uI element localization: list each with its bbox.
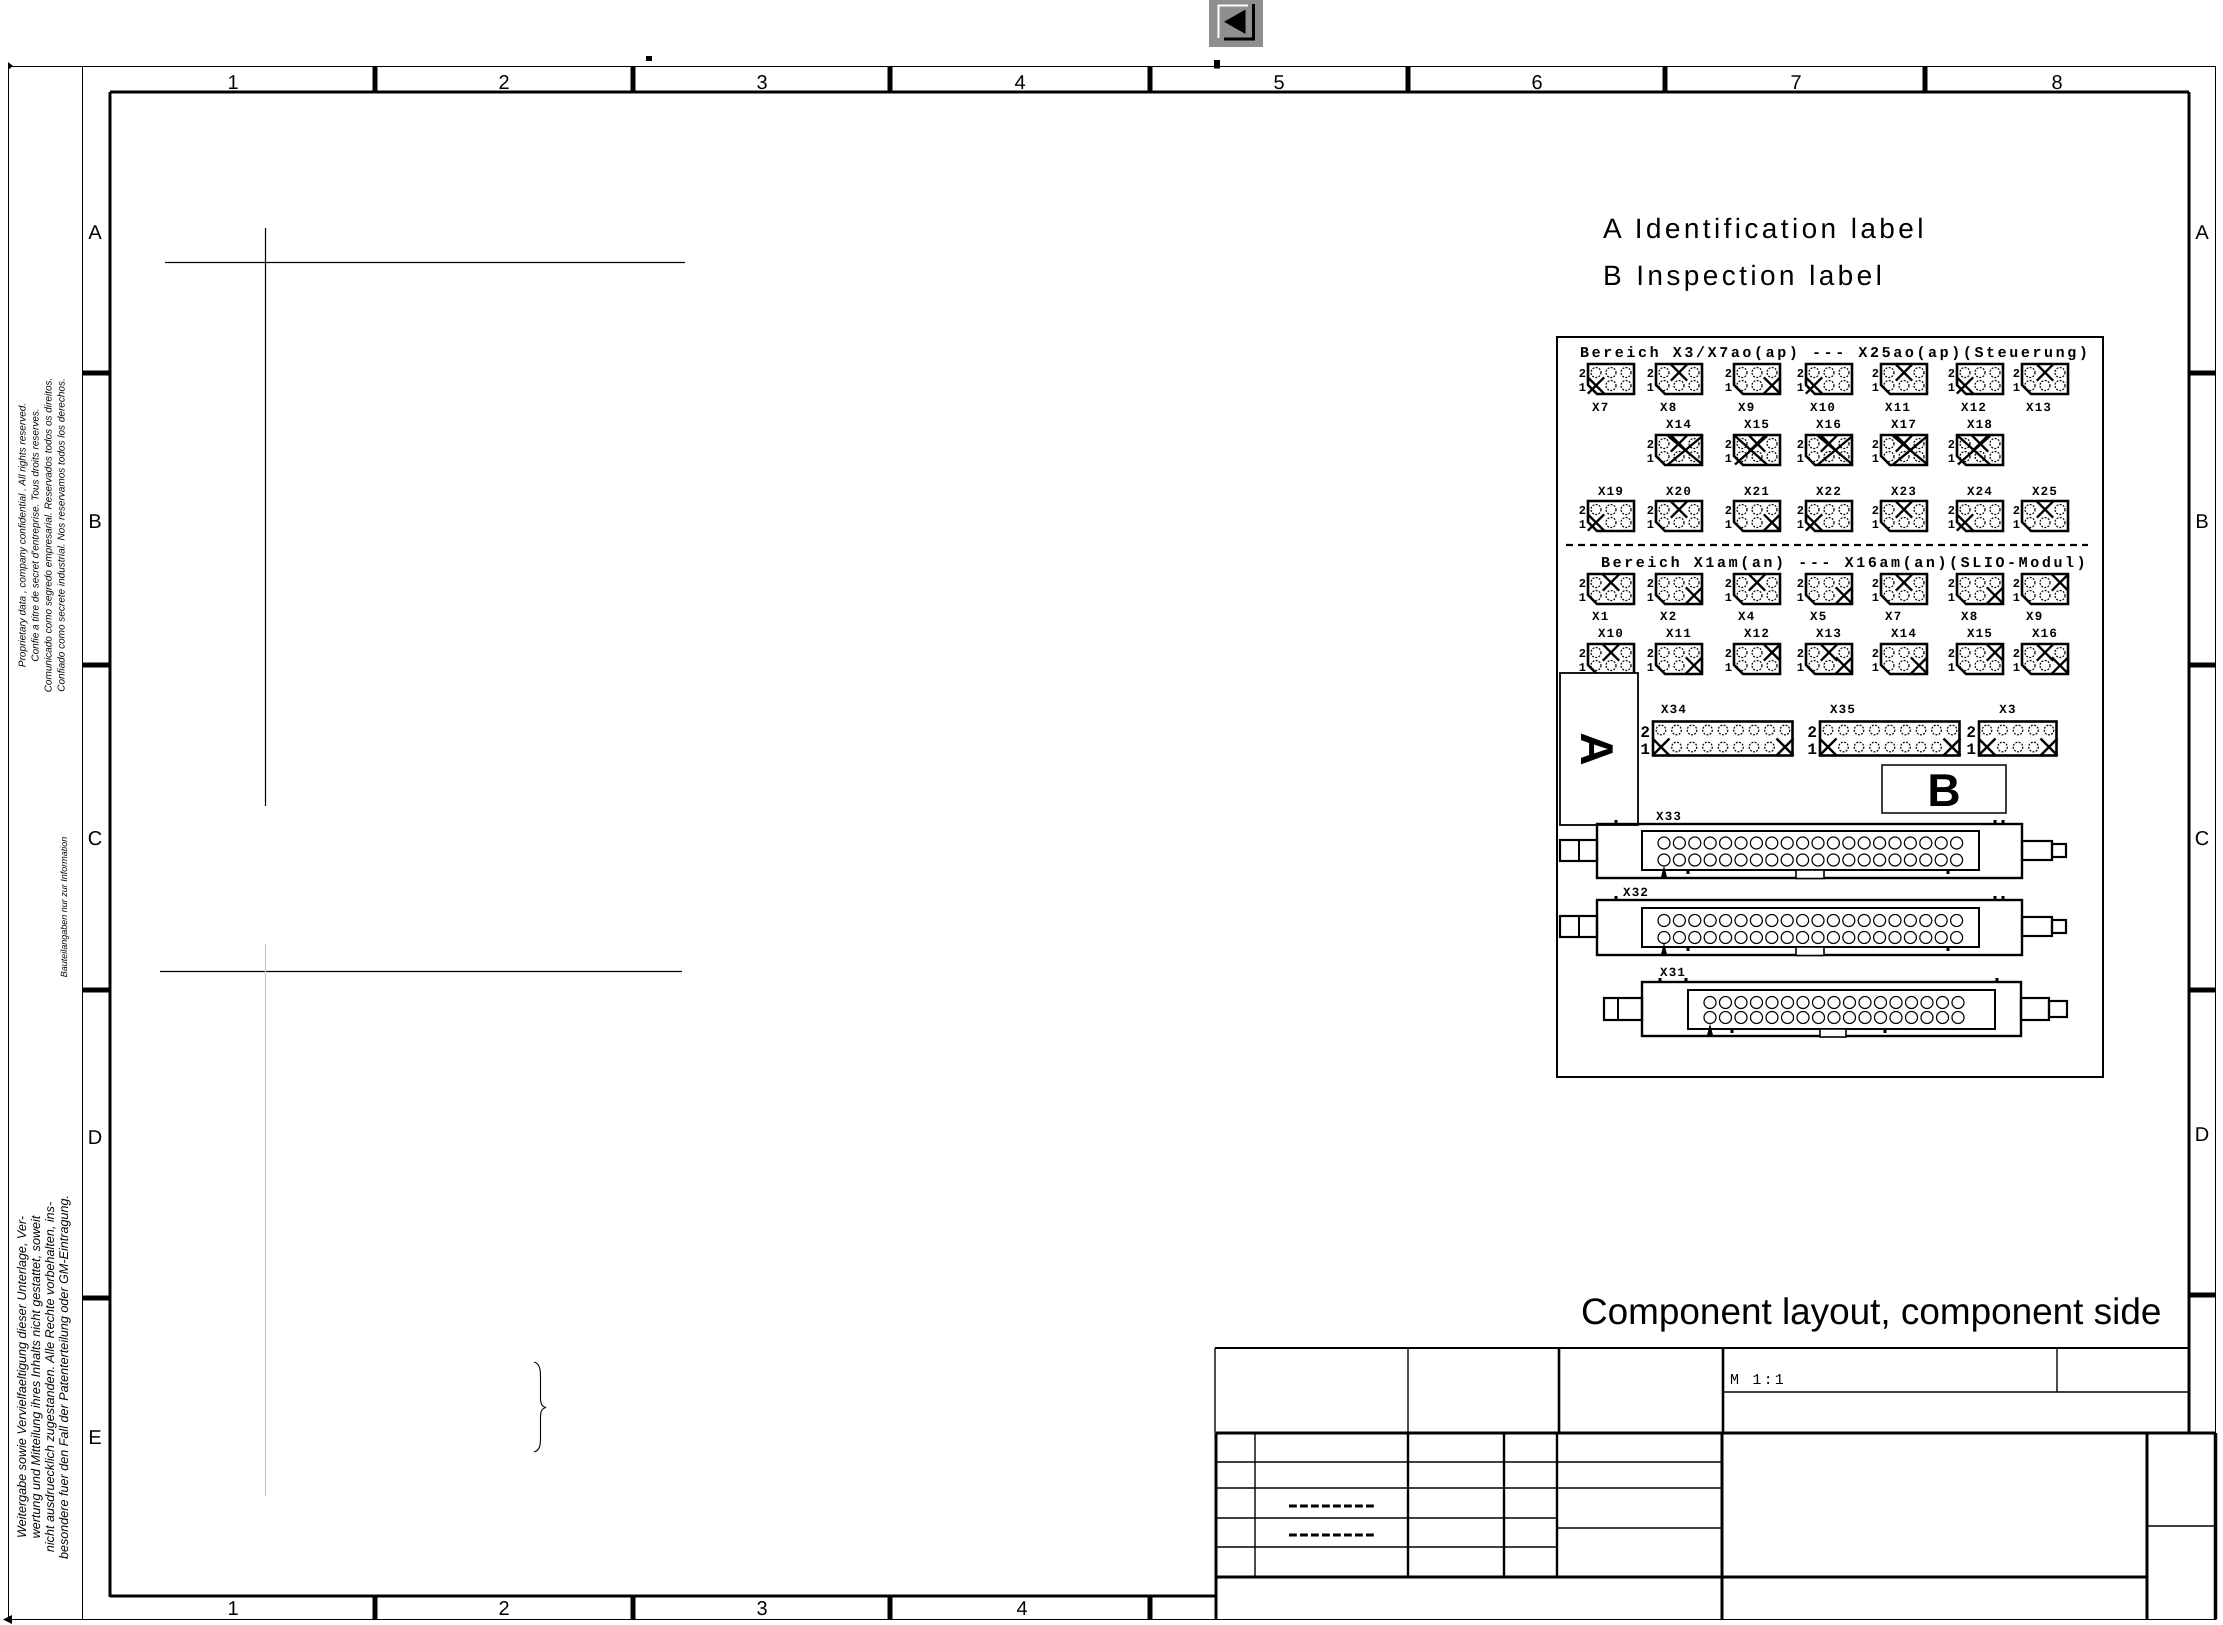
- svg-text:2: 2: [2013, 367, 2020, 381]
- svg-text:2: 2: [1579, 577, 1586, 591]
- svg-text:X3: X3: [1999, 703, 2016, 717]
- svg-text:2: 2: [1725, 577, 1732, 591]
- svg-text:2: 2: [1647, 647, 1654, 661]
- svg-text:2: 2: [1579, 504, 1586, 518]
- svg-text:Bereich X3/X7ao(ap) --- X25a: Bereich X3/X7ao(ap) --- X25ao(ap)(Steuer…: [1580, 345, 2090, 362]
- svg-text:X19: X19: [1598, 485, 1624, 499]
- svg-text:X18: X18: [1967, 418, 1993, 432]
- svg-text:X34: X34: [1661, 703, 1687, 717]
- svg-text:X9: X9: [1738, 401, 1755, 415]
- svg-text:X12: X12: [1961, 401, 1987, 415]
- svg-text:1: 1: [1948, 591, 1955, 605]
- svg-text:C: C: [88, 828, 102, 850]
- svg-text:1: 1: [1647, 381, 1654, 395]
- svg-text:1: 1: [1647, 591, 1654, 605]
- svg-text:X11: X11: [1885, 401, 1911, 415]
- svg-text:A: A: [2195, 222, 2209, 244]
- svg-text:1: 1: [2013, 591, 2020, 605]
- svg-text:B: B: [88, 511, 101, 533]
- svg-text:X13: X13: [2026, 401, 2052, 415]
- svg-text:X14: X14: [1891, 627, 1917, 641]
- svg-text:1: 1: [1797, 452, 1804, 466]
- svg-text:1: 1: [1948, 661, 1955, 675]
- svg-text:2: 2: [1797, 367, 1804, 381]
- svg-text:2: 2: [1797, 438, 1804, 452]
- svg-text:X4: X4: [1738, 610, 1755, 624]
- svg-text:X12: X12: [1744, 627, 1770, 641]
- svg-text:2: 2: [1725, 647, 1732, 661]
- svg-text:M 1:1: M 1:1: [1730, 1372, 1786, 1389]
- svg-text:1: 1: [1797, 381, 1804, 395]
- svg-text:6: 6: [1531, 72, 1542, 94]
- svg-text:1: 1: [1797, 518, 1804, 532]
- svg-text:1: 1: [1647, 661, 1654, 675]
- svg-text:A Identification label: A Identification label: [1603, 213, 1927, 244]
- svg-text:D: D: [88, 1127, 102, 1149]
- svg-text:A: A: [88, 222, 102, 244]
- svg-text:1: 1: [1872, 381, 1879, 395]
- svg-text:1: 1: [1579, 591, 1586, 605]
- svg-text:2: 2: [1948, 647, 1955, 661]
- svg-text:1: 1: [1725, 591, 1732, 605]
- svg-text:1: 1: [1640, 741, 1650, 759]
- svg-text:1: 1: [1725, 381, 1732, 395]
- svg-text:2: 2: [1872, 367, 1879, 381]
- svg-text:2: 2: [1647, 367, 1654, 381]
- svg-text:X8: X8: [1961, 610, 1978, 624]
- svg-text:2: 2: [1948, 438, 1955, 452]
- svg-text:2: 2: [1797, 647, 1804, 661]
- svg-text:X2: X2: [1660, 610, 1677, 624]
- svg-text:X21: X21: [1744, 485, 1770, 499]
- svg-text:3: 3: [756, 1598, 767, 1620]
- svg-text:1: 1: [1797, 591, 1804, 605]
- svg-text:4: 4: [1014, 72, 1025, 94]
- svg-text:X7: X7: [1885, 610, 1902, 624]
- svg-text:1: 1: [1647, 452, 1654, 466]
- svg-text:2: 2: [1797, 504, 1804, 518]
- svg-text:2: 2: [1948, 577, 1955, 591]
- svg-text:2: 2: [2013, 647, 2020, 661]
- svg-text:X20: X20: [1666, 485, 1692, 499]
- svg-text:B: B: [1927, 764, 1960, 816]
- svg-text:2: 2: [1872, 504, 1879, 518]
- svg-text:2: 2: [1725, 438, 1732, 452]
- svg-text:2: 2: [1725, 367, 1732, 381]
- svg-text:X25: X25: [2032, 485, 2058, 499]
- svg-text:1: 1: [1647, 518, 1654, 532]
- svg-text:1: 1: [1872, 452, 1879, 466]
- svg-text:X15: X15: [1967, 627, 1993, 641]
- svg-text:X35: X35: [1830, 703, 1856, 717]
- svg-text:X23: X23: [1891, 485, 1917, 499]
- svg-text:X14: X14: [1666, 418, 1692, 432]
- svg-text:1: 1: [1872, 518, 1879, 532]
- svg-text:4: 4: [1016, 1598, 1027, 1620]
- svg-text:7: 7: [1790, 72, 1801, 94]
- svg-text:2: 2: [2013, 504, 2020, 518]
- svg-text:Component layout, component si: Component layout, component side: [1581, 1291, 2161, 1332]
- svg-text:2: 2: [1948, 504, 1955, 518]
- svg-text:X24: X24: [1967, 485, 1993, 499]
- svg-text:1: 1: [1725, 518, 1732, 532]
- svg-text:X13: X13: [1816, 627, 1842, 641]
- svg-text:B: B: [2195, 511, 2208, 533]
- svg-text:D: D: [2195, 1124, 2209, 1146]
- svg-text:2: 2: [1872, 438, 1879, 452]
- svg-text:X11: X11: [1666, 627, 1692, 641]
- svg-text:1: 1: [1872, 591, 1879, 605]
- svg-text:2: 2: [2013, 577, 2020, 591]
- svg-text:1: 1: [1725, 661, 1732, 675]
- svg-text:X32: X32: [1623, 886, 1649, 900]
- svg-text:2: 2: [1966, 724, 1976, 742]
- svg-text:1: 1: [1807, 741, 1817, 759]
- svg-text:2: 2: [498, 72, 509, 94]
- svg-text:X10: X10: [1598, 627, 1624, 641]
- svg-text:X9: X9: [2026, 610, 2043, 624]
- svg-text:X31: X31: [1660, 966, 1686, 980]
- svg-text:2: 2: [1647, 438, 1654, 452]
- svg-text:1: 1: [1872, 661, 1879, 675]
- svg-text:2: 2: [1797, 577, 1804, 591]
- svg-text:2: 2: [1640, 724, 1650, 742]
- svg-text:C: C: [2195, 828, 2209, 850]
- svg-text:X16: X16: [1816, 418, 1842, 432]
- svg-text:B Inspection label: B Inspection label: [1603, 260, 1885, 291]
- svg-text:1: 1: [227, 72, 238, 94]
- svg-text:X16: X16: [2032, 627, 2058, 641]
- svg-text:Bereich X1am(an) --- X16am(a: Bereich X1am(an) --- X16am(an)(SLIO-Modu…: [1601, 555, 2088, 572]
- svg-text:1: 1: [2013, 661, 2020, 675]
- svg-text:1: 1: [1948, 518, 1955, 532]
- svg-text:2: 2: [1807, 724, 1817, 742]
- svg-text:1: 1: [1948, 381, 1955, 395]
- svg-text:1: 1: [227, 1598, 238, 1620]
- svg-text:X5: X5: [1810, 610, 1827, 624]
- svg-text:X17: X17: [1891, 418, 1917, 432]
- svg-text:1: 1: [1797, 661, 1804, 675]
- svg-text:8: 8: [2051, 72, 2062, 94]
- svg-text:Bauteilangaben nur zur Informa: Bauteilangaben nur zur Information: [59, 837, 69, 978]
- svg-text:X15: X15: [1744, 418, 1770, 432]
- svg-text:5: 5: [1273, 72, 1284, 94]
- svg-text:Proprietary data , company con: Proprietary data , company confidential …: [18, 378, 68, 693]
- svg-text:X33: X33: [1656, 810, 1682, 824]
- svg-text:1: 1: [2013, 518, 2020, 532]
- svg-text:1: 1: [1966, 741, 1976, 759]
- svg-text:3: 3: [756, 72, 767, 94]
- svg-text:E: E: [88, 1427, 101, 1449]
- svg-text:2: 2: [1579, 367, 1586, 381]
- svg-text:X10: X10: [1810, 401, 1836, 415]
- svg-text:2: 2: [498, 1598, 509, 1620]
- svg-text:1: 1: [1725, 452, 1732, 466]
- svg-text:2: 2: [1872, 577, 1879, 591]
- svg-text:1: 1: [1948, 452, 1955, 466]
- svg-text:2: 2: [1872, 647, 1879, 661]
- svg-text:A: A: [1571, 732, 1623, 765]
- svg-text:2: 2: [1647, 577, 1654, 591]
- svg-text:X22: X22: [1816, 485, 1842, 499]
- svg-text:X1: X1: [1592, 610, 1609, 624]
- svg-text:Weitergabe sowie Vervielfaelti: Weitergabe sowie Vervielfaeltigung diese…: [15, 1195, 71, 1559]
- svg-text:1: 1: [1579, 381, 1586, 395]
- svg-text:X8: X8: [1660, 401, 1677, 415]
- svg-text:2: 2: [1948, 367, 1955, 381]
- svg-text:2: 2: [1725, 504, 1732, 518]
- svg-text:1: 1: [1579, 518, 1586, 532]
- svg-text:2: 2: [1579, 647, 1586, 661]
- svg-text:1: 1: [2013, 381, 2020, 395]
- svg-text:2: 2: [1647, 504, 1654, 518]
- svg-text:X7: X7: [1592, 401, 1609, 415]
